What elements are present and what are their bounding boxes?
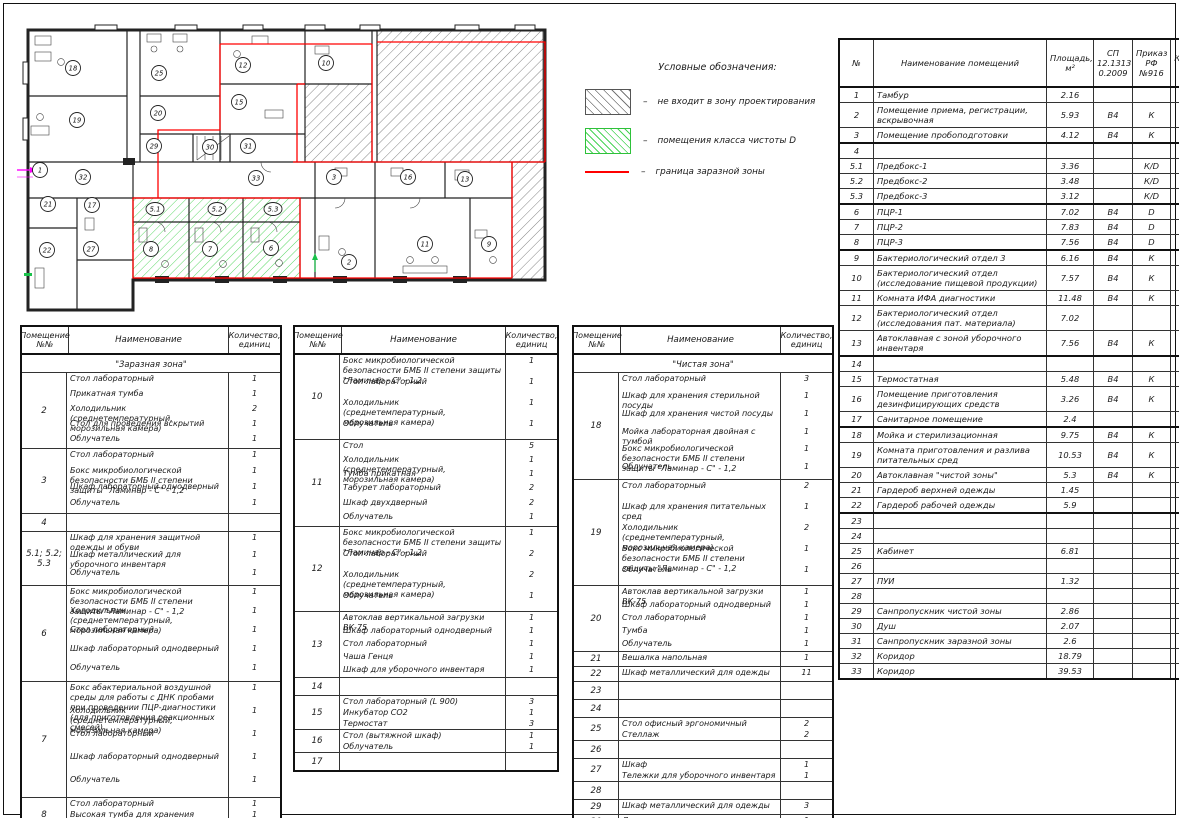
item-name: Стол лабораторный <box>67 798 228 809</box>
table-row: 23 <box>839 513 1179 529</box>
cell: 5.2 <box>839 174 874 189</box>
cell <box>1171 664 1179 680</box>
cell: ПУИ <box>874 574 1047 589</box>
cell: Предбокс-2 <box>874 174 1047 189</box>
table-row: 33Коридор39.53 <box>839 664 1179 680</box>
cell: К/D <box>1133 174 1171 189</box>
equipment-item: Бокс микробиологической безопасности БМБ… <box>340 527 557 548</box>
legend-item: –граница заразной зоны <box>585 167 850 177</box>
item-name: Шкаф для хранения стерильной посуды <box>619 391 780 409</box>
cell: 20 <box>839 468 874 483</box>
item-name: Табурет лабораторный <box>340 483 505 497</box>
room-number: 13 <box>295 612 340 677</box>
cell: В4 <box>1094 220 1133 235</box>
cell <box>1094 649 1133 664</box>
cell: К <box>1133 427 1171 443</box>
item-quantity: 1 <box>228 388 280 403</box>
item-quantity: 1 <box>228 373 280 388</box>
equipment-item: Мойка лабораторная двойная с тумбой1 <box>619 426 832 444</box>
room-number-text: 5.1 <box>150 205 161 213</box>
equipment-item: Инкубатор СО21 <box>340 707 557 718</box>
table-row: 29Санпропускник чистой зоны2.86 <box>839 604 1179 619</box>
cell <box>1133 649 1171 664</box>
cell <box>1094 412 1133 428</box>
cell: 2.6 <box>1047 634 1094 649</box>
item-name: Бокс микробиологической безопасности БМБ… <box>340 527 505 548</box>
equipment-row: 13Автоклав вертикальной загрузки ВК-751Ш… <box>295 612 557 678</box>
cell <box>1171 634 1179 649</box>
item-name: Шкаф <box>619 759 780 770</box>
equipment-row: 20Автоклав вертикальной загрузки ВК-751Ш… <box>574 586 832 652</box>
item-name: Стол (вытяжной шкаф) <box>340 730 505 741</box>
equipment-item: Стол (вытяжной шкаф)1 <box>340 730 557 741</box>
item-quantity: 1 <box>780 652 832 666</box>
equipment-item: Холодильник (среднетемпературный, морози… <box>67 605 280 624</box>
cell: Гардероб верхней одежды <box>874 483 1047 498</box>
cell: D <box>1133 204 1171 220</box>
table-row: 27ПУИ1.32 <box>839 574 1179 589</box>
table-row: 25Кабинет6.81 <box>839 544 1179 559</box>
red-line-icon <box>585 171 629 173</box>
item-quantity: 1 <box>780 543 832 564</box>
item-name: Облучатель <box>340 418 505 439</box>
item-name: Облучатель <box>67 433 228 448</box>
item-quantity: 1 <box>505 651 557 664</box>
item-name: Холодильник (среднетемпературный, морози… <box>67 705 228 728</box>
cell: В4 <box>1094 291 1133 306</box>
equipment-row: 26 <box>574 741 832 759</box>
cell: 27 <box>839 574 874 589</box>
cell <box>1133 619 1171 634</box>
room-number-text: 15 <box>235 98 244 106</box>
item-name: Облучатель <box>619 461 780 479</box>
item-name: Бокс микробиологической безопасности БМБ… <box>67 586 228 605</box>
item-quantity: 1 <box>505 527 557 548</box>
equipment-item: Высокая тумба для хранения1 <box>67 809 280 818</box>
equipment-item: Шкаф для уборочного инвентаря1 <box>340 664 557 677</box>
cell <box>1047 356 1094 372</box>
cell <box>1047 513 1094 529</box>
item-quantity: 2 <box>780 480 832 501</box>
equipment-row: 8Стол лабораторный1Высокая тумба для хра… <box>22 798 280 818</box>
equipment-item: Шкаф для хранения питательных сред1 <box>619 501 832 522</box>
item-quantity: 1 <box>228 532 280 550</box>
room-number-text: 16 <box>404 173 413 181</box>
cell: 4.12 <box>1047 128 1094 144</box>
cell <box>1171 306 1179 331</box>
cell: 15 <box>839 372 874 387</box>
room-number-text: 1 <box>38 166 42 174</box>
item-quantity: 1 <box>505 512 557 526</box>
cell: 6.81 <box>1047 544 1094 559</box>
item-quantity: 1 <box>228 418 280 433</box>
equipment-item: Облучатель1 <box>67 774 280 797</box>
equipment-item: Шкаф лабораторный однодверный1 <box>67 643 280 662</box>
cell <box>1171 529 1179 544</box>
cell: В4 <box>1094 103 1133 128</box>
cell <box>1171 513 1179 529</box>
room-number-text: 18 <box>69 64 78 72</box>
equipment-row: 11Стол5Холодильник (среднетемпературный,… <box>295 440 557 527</box>
cell <box>1171 356 1179 372</box>
room-number-text: 21 <box>44 200 53 208</box>
table-row: 13Автоклавная с зоной уборочного инвента… <box>839 331 1179 357</box>
cell: 10 <box>839 266 874 291</box>
equipment-row: 25Стол офисный эргономичный2Стеллаж2 <box>574 718 832 741</box>
table-row: 1Тамбур2.16 <box>839 87 1179 103</box>
cell: П-IIа <box>1171 331 1179 357</box>
item-name: Шкаф лабораторный однодверный <box>67 481 228 497</box>
cell <box>1171 619 1179 634</box>
rooms-table-body: 1Тамбур2.162Помещение приема, регистраци… <box>839 87 1179 679</box>
cell <box>1094 634 1133 649</box>
cell <box>1133 143 1171 159</box>
item-name: Шкаф для хранения защитной одежды и обув… <box>67 532 228 550</box>
item-quantity: 2 <box>505 548 557 569</box>
col-header-room: Помещение №№ <box>574 327 621 353</box>
cell <box>1094 619 1133 634</box>
table-row: 4 <box>839 143 1179 159</box>
cell <box>1094 483 1133 498</box>
item-quantity: 1 <box>780 444 832 462</box>
cell: 9.75 <box>1047 427 1094 443</box>
equipment-row: 19Стол лабораторный2Шкаф для хранения пи… <box>574 480 832 586</box>
cell: 22 <box>839 498 874 514</box>
item-quantity: 1 <box>228 624 280 643</box>
room-number-text: 9 <box>487 240 491 248</box>
equipment-item: Шкаф для хранения чистой посуды1 <box>619 408 832 426</box>
cell: 24 <box>839 529 874 544</box>
cell: 29 <box>839 604 874 619</box>
room-number: 6 <box>22 586 67 681</box>
room-number-text: 10 <box>322 59 331 67</box>
room-number-text: 20 <box>154 109 163 117</box>
item-quantity: 1 <box>780 461 832 479</box>
item-quantity: 1 <box>505 612 557 625</box>
table-row: 10Бактериологический отдел (исследование… <box>839 266 1179 291</box>
equipment-table-infectious-zone: Помещение №№ Наименование Количество, ед… <box>20 325 282 818</box>
drawing-sheet: 18192512152029303110335.15.25.3876316132… <box>0 0 1179 818</box>
cell <box>1094 604 1133 619</box>
cell: Кабинет <box>874 544 1047 559</box>
cell: 6 <box>839 204 874 220</box>
cell <box>1094 513 1133 529</box>
cell <box>1171 159 1179 174</box>
item-quantity: 1 <box>228 550 280 568</box>
equipment-table-clean-zone: Помещение №№ Наименование Количество, ед… <box>572 325 834 818</box>
equipment-table-middle: Помещение №№ Наименование Количество, ед… <box>293 325 559 772</box>
item-quantity: 1 <box>505 707 557 718</box>
cell: Бактериологический отдел (исследование п… <box>874 266 1047 291</box>
cell: 28 <box>839 589 874 604</box>
equipment-item: Облучатель1 <box>67 662 280 681</box>
equipment-row: 23 <box>574 682 832 700</box>
cell: Мойка и стерилизационная <box>874 427 1047 443</box>
room-number-text: 29 <box>150 142 159 150</box>
item-name: Стеллаж <box>619 729 780 740</box>
room-number: 26 <box>574 741 619 758</box>
cell <box>1133 513 1171 529</box>
cell: D <box>1133 235 1171 251</box>
cell: ПЦР-3 <box>874 235 1047 251</box>
equipment-item: Стол офисный эргономичный2 <box>619 718 832 729</box>
cell <box>1094 574 1133 589</box>
item-quantity: 3 <box>505 696 557 707</box>
item-quantity: 1 <box>505 638 557 651</box>
item-name: Стол лабораторный <box>340 376 505 397</box>
room-number-text: 5.3 <box>268 205 279 213</box>
cell: 5.9 <box>1047 498 1094 514</box>
cell: Помещение пробоподготовки <box>874 128 1047 144</box>
equipment-item: Стол лабораторный2 <box>340 548 557 569</box>
equipment-item: Шкаф двухдверный2 <box>340 497 557 511</box>
equipment-item: Холодильник (среднетемпературный, морози… <box>67 705 280 728</box>
equipment-row: 24 <box>574 700 832 718</box>
item-name: Шкаф лабораторный однодверный <box>67 643 228 662</box>
cell: П-IIа <box>1171 468 1179 483</box>
cell <box>1047 589 1094 604</box>
item-name: Холодильник (среднетемпературный, морози… <box>67 403 228 418</box>
cell: ПЦР-1 <box>874 204 1047 220</box>
cell: 2.4 <box>1047 412 1094 428</box>
equipment-item: Облучатель1 <box>340 418 557 439</box>
item-quantity: 1 <box>780 408 832 426</box>
cell: К/D <box>1133 159 1171 174</box>
equipment-row: 6Бокс микробиологической безопасности БМ… <box>22 586 280 682</box>
item-name: Стол лабораторный <box>67 624 228 643</box>
equipment-item: Стол лабораторный1 <box>619 612 832 625</box>
item-name: Стол лабораторный <box>67 449 228 465</box>
item-name: Бокс микробиологической безопасности БМБ… <box>619 543 780 564</box>
item-quantity: 3 <box>780 373 832 391</box>
cell: В4 <box>1094 204 1133 220</box>
room-number-text: 12 <box>239 61 248 69</box>
cell: К <box>1133 468 1171 483</box>
cell <box>1171 574 1179 589</box>
cell <box>1133 412 1171 428</box>
cell: 25 <box>839 544 874 559</box>
room-number: 25 <box>574 718 619 740</box>
item-name: Стол лабораторный (L 900) <box>340 696 505 707</box>
cell <box>1133 604 1171 619</box>
equipment-row: 16Стол (вытяжной шкаф)1Облучатель1 <box>295 730 557 753</box>
cell: В4 <box>1094 128 1133 144</box>
cell: 3.12 <box>1047 189 1094 205</box>
item-name: Холодильник (среднетемпературный, морози… <box>340 397 505 418</box>
room-number-text: 8 <box>149 245 154 253</box>
cell: 2.16 <box>1047 87 1094 103</box>
cell: 3 <box>839 128 874 144</box>
zone-title: "Чистая зона" <box>574 355 832 373</box>
cell: D <box>1133 220 1171 235</box>
cell <box>1133 589 1171 604</box>
room-number: 23 <box>574 682 619 699</box>
item-quantity: 1 <box>228 433 280 448</box>
cell: В4 <box>1094 331 1133 357</box>
equipment-row: 12Бокс микробиологической безопасности Б… <box>295 527 557 612</box>
item-name: Облучатель <box>619 564 780 585</box>
item-name: Облучатель <box>619 638 780 651</box>
cell: 18.79 <box>1047 649 1094 664</box>
item-quantity: 2 <box>780 718 832 729</box>
room-number: 11 <box>295 440 340 526</box>
cell <box>1171 189 1179 205</box>
equipment-row: 21Вешалка напольная1 <box>574 652 832 667</box>
equipment-item: Стол лабораторный1 <box>67 449 280 465</box>
col-header-quantity: Количество, единиц <box>506 327 557 353</box>
item-quantity: 1 <box>780 391 832 409</box>
equipment-item: Тумба прикатная1 <box>340 469 557 483</box>
cell: 16 <box>839 387 874 412</box>
table-row: 18Мойка и стерилизационная9.75В4КП-IIа <box>839 427 1179 443</box>
table-row: 30Душ2.07 <box>839 619 1179 634</box>
item-name: Шкаф металлический для одежды <box>619 800 780 814</box>
equipment-item: Стол лабораторный1 <box>67 728 280 751</box>
table-row: 5.1Предбокс-13.36К/D <box>839 159 1179 174</box>
cell: 5.3 <box>1047 468 1094 483</box>
cell: 31 <box>839 634 874 649</box>
item-name: Стол для проведения вскрытий <box>67 418 228 433</box>
equipment-row: 18Стол лабораторный3Шкаф для хранения ст… <box>574 373 832 480</box>
cell <box>1133 544 1171 559</box>
cell: 5.93 <box>1047 103 1094 128</box>
item-name: Стол лабораторный <box>619 373 780 391</box>
table-row: 3Помещение пробоподготовки4.12В4КП-IIа <box>839 128 1179 144</box>
equipment-row: 29Шкаф металлический для одежды3 <box>574 800 832 815</box>
cell: Санпропускник заразной зоны <box>874 634 1047 649</box>
item-quantity: 2 <box>505 569 557 590</box>
item-name: Стол лабораторный <box>67 728 228 751</box>
cell: П-IIа <box>1171 235 1179 251</box>
cell <box>1133 574 1171 589</box>
cell: Коридор <box>874 664 1047 680</box>
table-row: 12Бактериологический отдел (исследования… <box>839 306 1179 331</box>
hatch-green-icon <box>585 128 631 154</box>
cell <box>1094 529 1133 544</box>
table-row: 2Помещение приема, регистрации, вскрывоч… <box>839 103 1179 128</box>
cell: П-IIа <box>1171 220 1179 235</box>
item-quantity: 1 <box>228 751 280 774</box>
item-quantity: 2 <box>780 522 832 543</box>
cell: 12 <box>839 306 874 331</box>
cell <box>1133 559 1171 574</box>
table-row: 16Помещение приготовления дезинфицирующи… <box>839 387 1179 412</box>
cell: Бактериологический отдел (исследования п… <box>874 306 1047 331</box>
col-header-item: Наименование <box>621 327 781 353</box>
item-name: Высокая тумба для хранения <box>67 809 228 818</box>
item-name: Облучатель <box>340 512 505 526</box>
col-header-quantity: Количество, единиц <box>229 327 280 353</box>
equipment-table-header: Помещение №№ Наименование Количество, ед… <box>22 327 280 355</box>
cell: К <box>1133 250 1171 266</box>
equipment-table-header: Помещение №№ Наименование Количество, ед… <box>574 327 832 355</box>
table-row: 5.3Предбокс-33.12К/D <box>839 189 1179 205</box>
item-quantity: 1 <box>228 497 280 513</box>
equipment-item: Стол лабораторный1 <box>67 624 280 643</box>
col-header-class: Класс по ПУЭ <box>1171 39 1179 87</box>
cell: П-IIа <box>1171 427 1179 443</box>
room-number-text: 5.2 <box>212 205 223 213</box>
equipment-item: Автоклав вертикальной загрузки ВК-751 <box>619 586 832 599</box>
item-quantity: 11 <box>780 667 832 681</box>
item-quantity: 1 <box>505 397 557 418</box>
equipment-item: Шкаф лабораторный однодверный1 <box>619 599 832 612</box>
table-row: 26 <box>839 559 1179 574</box>
item-quantity: 1 <box>780 599 832 612</box>
equipment-item: Шкаф лабораторный однодверный1 <box>67 481 280 497</box>
equipment-item: Шкаф металлический для уборочного инвент… <box>67 550 280 568</box>
equipment-item: Холодильник (среднетемпературный, морози… <box>340 569 557 590</box>
item-name: Шкаф металлический для уборочного инвент… <box>67 550 228 568</box>
cell <box>1133 498 1171 514</box>
equipment-item: Шкаф лабораторный однодверный1 <box>67 751 280 774</box>
item-name: Вешалка напольная <box>619 652 780 666</box>
room-number: 14 <box>295 678 340 695</box>
cell <box>874 356 1047 372</box>
cell: 23 <box>839 513 874 529</box>
cell <box>1171 604 1179 619</box>
cell: П-IIа <box>1171 387 1179 412</box>
equipment-item: Стол лабораторный1 <box>340 376 557 397</box>
item-quantity: 1 <box>228 605 280 624</box>
equipment-item: Прикатная тумба1 <box>67 388 280 403</box>
cell: ПЦР-2 <box>874 220 1047 235</box>
item-quantity: 1 <box>228 728 280 751</box>
item-quantity: 1 <box>505 741 557 752</box>
item-name: Стол лабораторный <box>340 638 505 651</box>
equipment-item: Бокс микробиологической безопасности БМБ… <box>619 543 832 564</box>
cell: П-IIа <box>1171 128 1179 144</box>
item-name: Облучатель <box>67 662 228 681</box>
equipment-row: 3Стол лабораторный1Бокс микробиологическ… <box>22 449 280 514</box>
item-quantity: 1 <box>780 759 832 770</box>
room-number: 3 <box>22 449 67 513</box>
item-name: Облучатель <box>340 741 505 752</box>
room-number-text: 25 <box>155 69 164 77</box>
equipment-item: Облучатель1 <box>619 564 832 585</box>
room-number-text: 32 <box>79 173 88 181</box>
room-number-text: 31 <box>244 142 253 150</box>
equipment-item: Бокс абактериальной воздушной среды для … <box>67 682 280 705</box>
cell: 13 <box>839 331 874 357</box>
item-name: Прикатная тумба <box>67 388 228 403</box>
room-number: 20 <box>574 586 619 651</box>
cell <box>1133 356 1171 372</box>
item-quantity: 1 <box>228 809 280 818</box>
item-name: Стол лабораторный <box>619 612 780 625</box>
room-number: 29 <box>574 800 619 814</box>
cell: В4 <box>1094 427 1133 443</box>
equipment-item: Стол лабораторный1 <box>340 638 557 651</box>
cell <box>874 529 1047 544</box>
room-number-text: 17 <box>88 201 97 209</box>
table-row: 21Гардероб верхней одежды1.45 <box>839 483 1179 498</box>
cell: Тамбур <box>874 87 1047 103</box>
cell <box>1133 664 1171 680</box>
room-number: 24 <box>574 700 619 717</box>
item-quantity: 1 <box>228 449 280 465</box>
item-name: Автоклав вертикальной загрузки ВК-75 <box>619 586 780 599</box>
equipment-item: Стол5 <box>340 440 557 454</box>
table-row: 9Бактериологический отдел 36.16В4КП-IIа <box>839 250 1179 266</box>
table-row: 24 <box>839 529 1179 544</box>
cell <box>1133 483 1171 498</box>
legend: Условные обозначения: –не входит в зону … <box>585 62 850 190</box>
table-row: 32Коридор18.79 <box>839 649 1179 664</box>
equipment-row: 17 <box>295 753 557 770</box>
cell <box>1094 544 1133 559</box>
item-quantity: 2 <box>505 497 557 511</box>
